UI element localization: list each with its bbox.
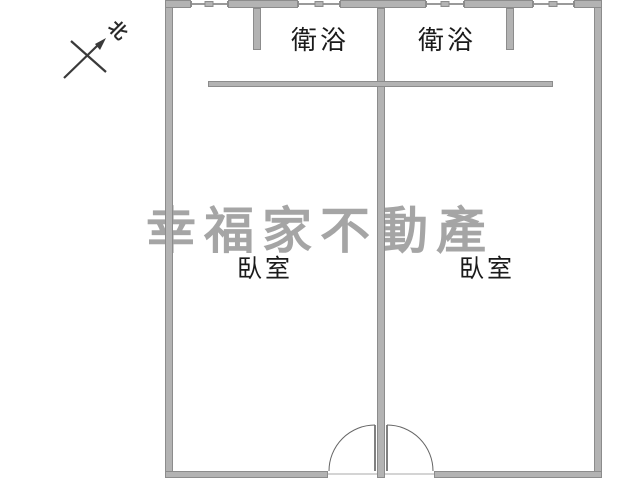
room-label-bedroom-right: 臥室: [459, 256, 515, 281]
window-end-tick: [190, 1, 575, 7]
room-label-bathroom-right: 衛浴: [418, 28, 476, 54]
door-leaf: [375, 425, 387, 471]
room-label-bathroom-left: 衛浴: [291, 28, 349, 54]
plan-linework: 北: [0, 0, 640, 480]
window-mullion-icon: [205, 2, 557, 7]
north-label: 北: [104, 17, 132, 45]
door-swing-arc: [329, 425, 433, 471]
floor-plan: 幸福家不動產: [0, 0, 640, 480]
room-label-bedroom-left: 臥室: [237, 256, 293, 281]
north-arrow-icon: 北: [64, 17, 131, 78]
